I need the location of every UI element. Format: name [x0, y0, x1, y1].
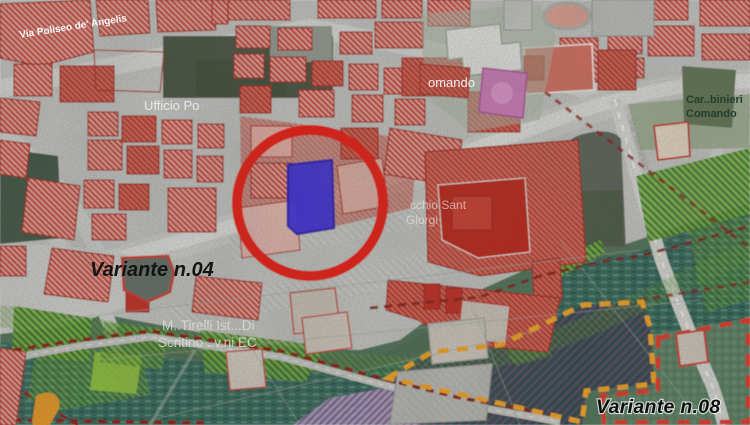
- svg-text:omando: omando: [428, 75, 475, 90]
- svg-text:Giorgi: Giorgi: [406, 213, 438, 227]
- svg-text:Variante n.08: Variante n.08: [596, 396, 721, 418]
- svg-text:Scritino ..v.ni EC: Scritino ..v.ni EC: [158, 335, 257, 350]
- svg-text:Variante n.04: Variante n.04: [90, 259, 214, 281]
- svg-text:M..Tirelli Ist...Di: M..Tirelli Ist...Di: [162, 318, 255, 333]
- svg-text:Ufficio Po: Ufficio Po: [144, 98, 199, 113]
- svg-text:Comando: Comando: [686, 108, 737, 120]
- svg-text:Car..binieri: Car..binieri: [686, 94, 743, 106]
- svg-text:cchio Sant: cchio Sant: [410, 198, 467, 212]
